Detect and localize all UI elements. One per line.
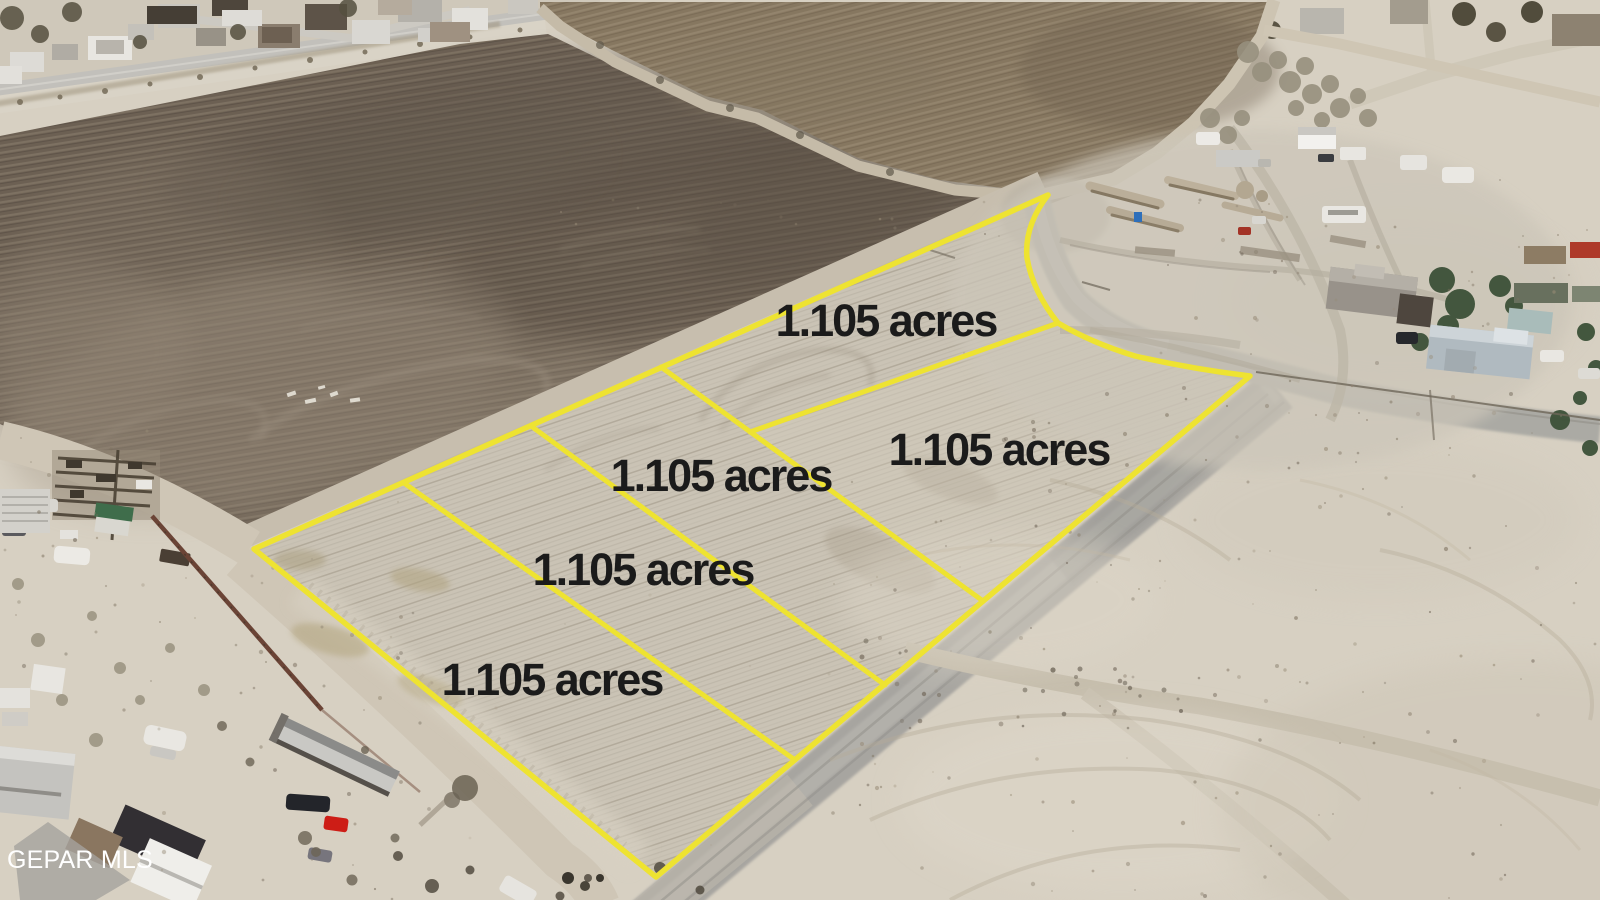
svg-text:1.105 acres: 1.105 acres: [889, 424, 1111, 475]
svg-text:GEPAR MLS: GEPAR MLS: [7, 846, 153, 874]
svg-text:1.105 acres: 1.105 acres: [442, 654, 664, 705]
svg-text:1.105 acres: 1.105 acres: [533, 544, 755, 595]
svg-text:1.105 acres: 1.105 acres: [611, 450, 833, 501]
svg-text:1.105 acres: 1.105 acres: [776, 295, 998, 346]
